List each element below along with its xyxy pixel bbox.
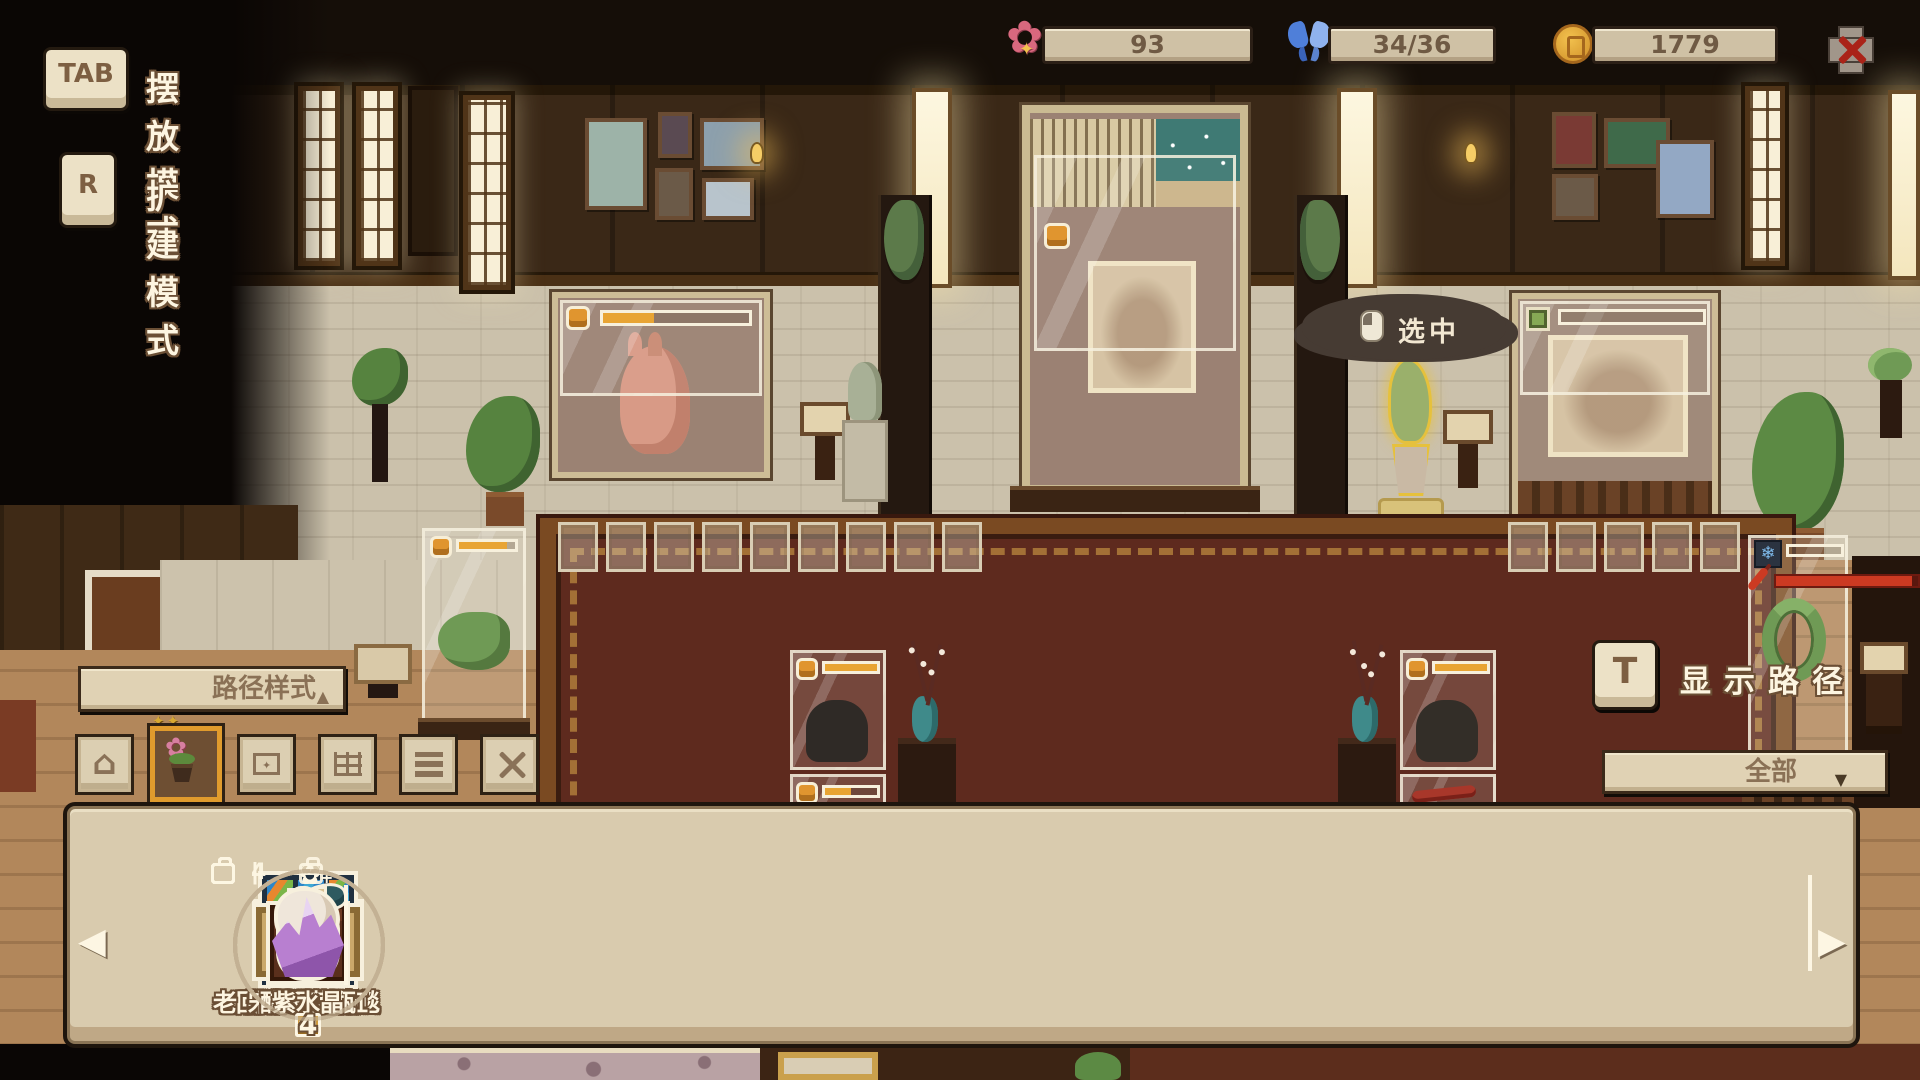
case-base [1010,486,1260,512]
item-card[interactable]: 老 [205,855,411,1044]
plant-stand [1880,380,1902,438]
close-button[interactable] [1828,26,1874,74]
wall-picture [655,168,693,220]
glass-tile[interactable] [846,522,886,572]
vase-badge-icon [796,658,818,680]
lattice-window [1745,86,1785,266]
items-row: |✿ 夜以继日桌 4 |✿ 摩登拼色屏风 4 |✿ 红柳木边柜 4 |✿ 回纹编… [205,855,1856,1044]
lower-shadow [0,1044,390,1080]
glass-tile[interactable] [798,522,838,572]
house-icon: ⌂ [81,740,128,786]
green-badge-icon [1526,307,1550,331]
statue-figure [848,362,882,420]
dark-artifact [1416,700,1478,762]
filter-dropdown[interactable]: 全部 ▼ [1602,750,1888,794]
center-display-case[interactable] [1022,105,1248,493]
exhibit-progress-bar [456,539,518,552]
sign-board [1443,410,1493,444]
snowflake-badge-icon: ❄ [1754,540,1782,568]
wall-picture [1552,112,1596,168]
horse-display-case[interactable] [552,292,770,478]
glass-tile[interactable] [606,522,646,572]
path-style-dropdown[interactable]: 路径样式 ▲ [78,666,346,712]
resource-value: 93 [1042,26,1253,64]
wall-picture [1552,174,1598,220]
glass-tile[interactable] [558,522,598,572]
wall-picture [702,178,754,220]
selection-tooltip: 选中 [1302,294,1506,360]
dark-artifact [806,700,868,762]
plant-pot [486,492,524,526]
glass-tile[interactable] [1556,522,1596,572]
keycap-r[interactable]: R [59,152,117,228]
statue-pedestal [842,420,888,502]
green-figure [1075,1052,1121,1080]
category-flooring-icon[interactable] [402,737,455,792]
chevron-up-icon: ▲ [317,677,329,717]
mode-label: 扩建模式 [146,170,182,362]
glass-tile[interactable] [750,522,790,572]
bricks-icon [334,752,362,776]
sign-post [1458,444,1478,488]
wall-picture [1656,140,1714,218]
red-cabinet-edge [0,700,36,792]
keycap-tab[interactable]: TAB [43,47,129,111]
vase-badge-icon [796,782,818,804]
wall-picture [585,118,647,210]
exhibit-progress-bar [822,661,880,674]
sign-board [354,644,412,684]
vase-badge-icon [1406,658,1428,680]
vase-badge-icon [430,536,452,558]
t-keycap[interactable]: T [1592,640,1658,710]
bright-window [1888,90,1920,280]
rose-screen-top [390,1048,760,1080]
glass-tile[interactable] [654,522,694,572]
sign-post [368,684,398,698]
glass-tile[interactable] [702,522,742,572]
gold-framed-picture [778,1052,878,1080]
glass-tile[interactable] [1700,522,1740,572]
tools-icon [499,751,527,779]
category-bricks-icon[interactable] [321,737,374,792]
glass-tile[interactable] [1604,522,1644,572]
bag-icon [211,863,235,884]
category-tools-icon[interactable] [483,737,536,792]
flower-icon: ✿✦ [1006,16,1043,60]
mouse-icon [1360,310,1384,342]
glass-pane [1034,155,1236,351]
wall-panel [408,86,458,256]
vase-badge-icon [566,306,590,330]
resource-value: 1779 [1592,26,1778,64]
dragon-ornament[interactable] [884,200,924,280]
flower-foliage [1868,348,1912,382]
item-name: 老 [205,983,411,1018]
wall-lamp [1464,142,1478,164]
exhibit-progress-bar [822,785,880,798]
sign-post [815,436,835,480]
separator-line [1808,875,1812,971]
vase-table [898,738,956,808]
glass-tile[interactable] [1652,522,1692,572]
butterfly-icon [1288,20,1330,66]
flooring-icon [415,752,443,777]
chevron-down-icon: ▼ [1835,761,1847,799]
next-arrow-button[interactable]: ▶ [1818,921,1846,962]
item-bar: ◀ |✿ 夜以继日桌 4 |✿ 摩登拼色屏风 4 |✿ 红柳木边柜 4 |✿ 回… [67,806,1856,1044]
glass-tile[interactable] [894,522,934,572]
vase-table [1338,738,1396,808]
show-path-label: 显示路径 [1680,656,1910,701]
coin-icon [1553,24,1593,64]
glass-tile[interactable] [942,522,982,572]
glass-tile[interactable] [1508,522,1548,572]
lattice-window [463,95,511,290]
category-plant-icon[interactable]: ✿ [150,726,222,802]
relief-display-case[interactable] [1512,293,1718,543]
frame-icon: ✦ [253,753,280,775]
prev-arrow-button[interactable]: ◀ [78,921,106,962]
exhibit-progress-bar [600,310,752,326]
exhibit-progress-bar [1432,661,1490,674]
plant-stand [372,404,388,482]
category-house-icon[interactable]: ⌂ [78,737,131,792]
wall-lamp [750,142,764,164]
filter-value: 全部 [1745,753,1797,791]
exhibit-progress-bar [1558,309,1706,325]
fish-fossil [438,612,510,670]
path-style-label: 路径样式 [212,669,316,709]
exhibit-progress-bar [1786,544,1844,557]
tooltip-text: 选中 [1398,310,1460,349]
game-screen: 选中 [0,0,1920,1080]
resource-value: 34/36 [1328,26,1496,64]
lower-red-wall [1130,1044,1920,1080]
lattice-window [356,86,398,266]
wall-picture [658,112,692,158]
category-frame-icon[interactable]: ✦ [240,737,293,792]
close-icon [1836,35,1866,65]
red-status-bar [1774,574,1920,588]
item-image [248,889,368,981]
vase-badge-icon [1044,223,1070,249]
